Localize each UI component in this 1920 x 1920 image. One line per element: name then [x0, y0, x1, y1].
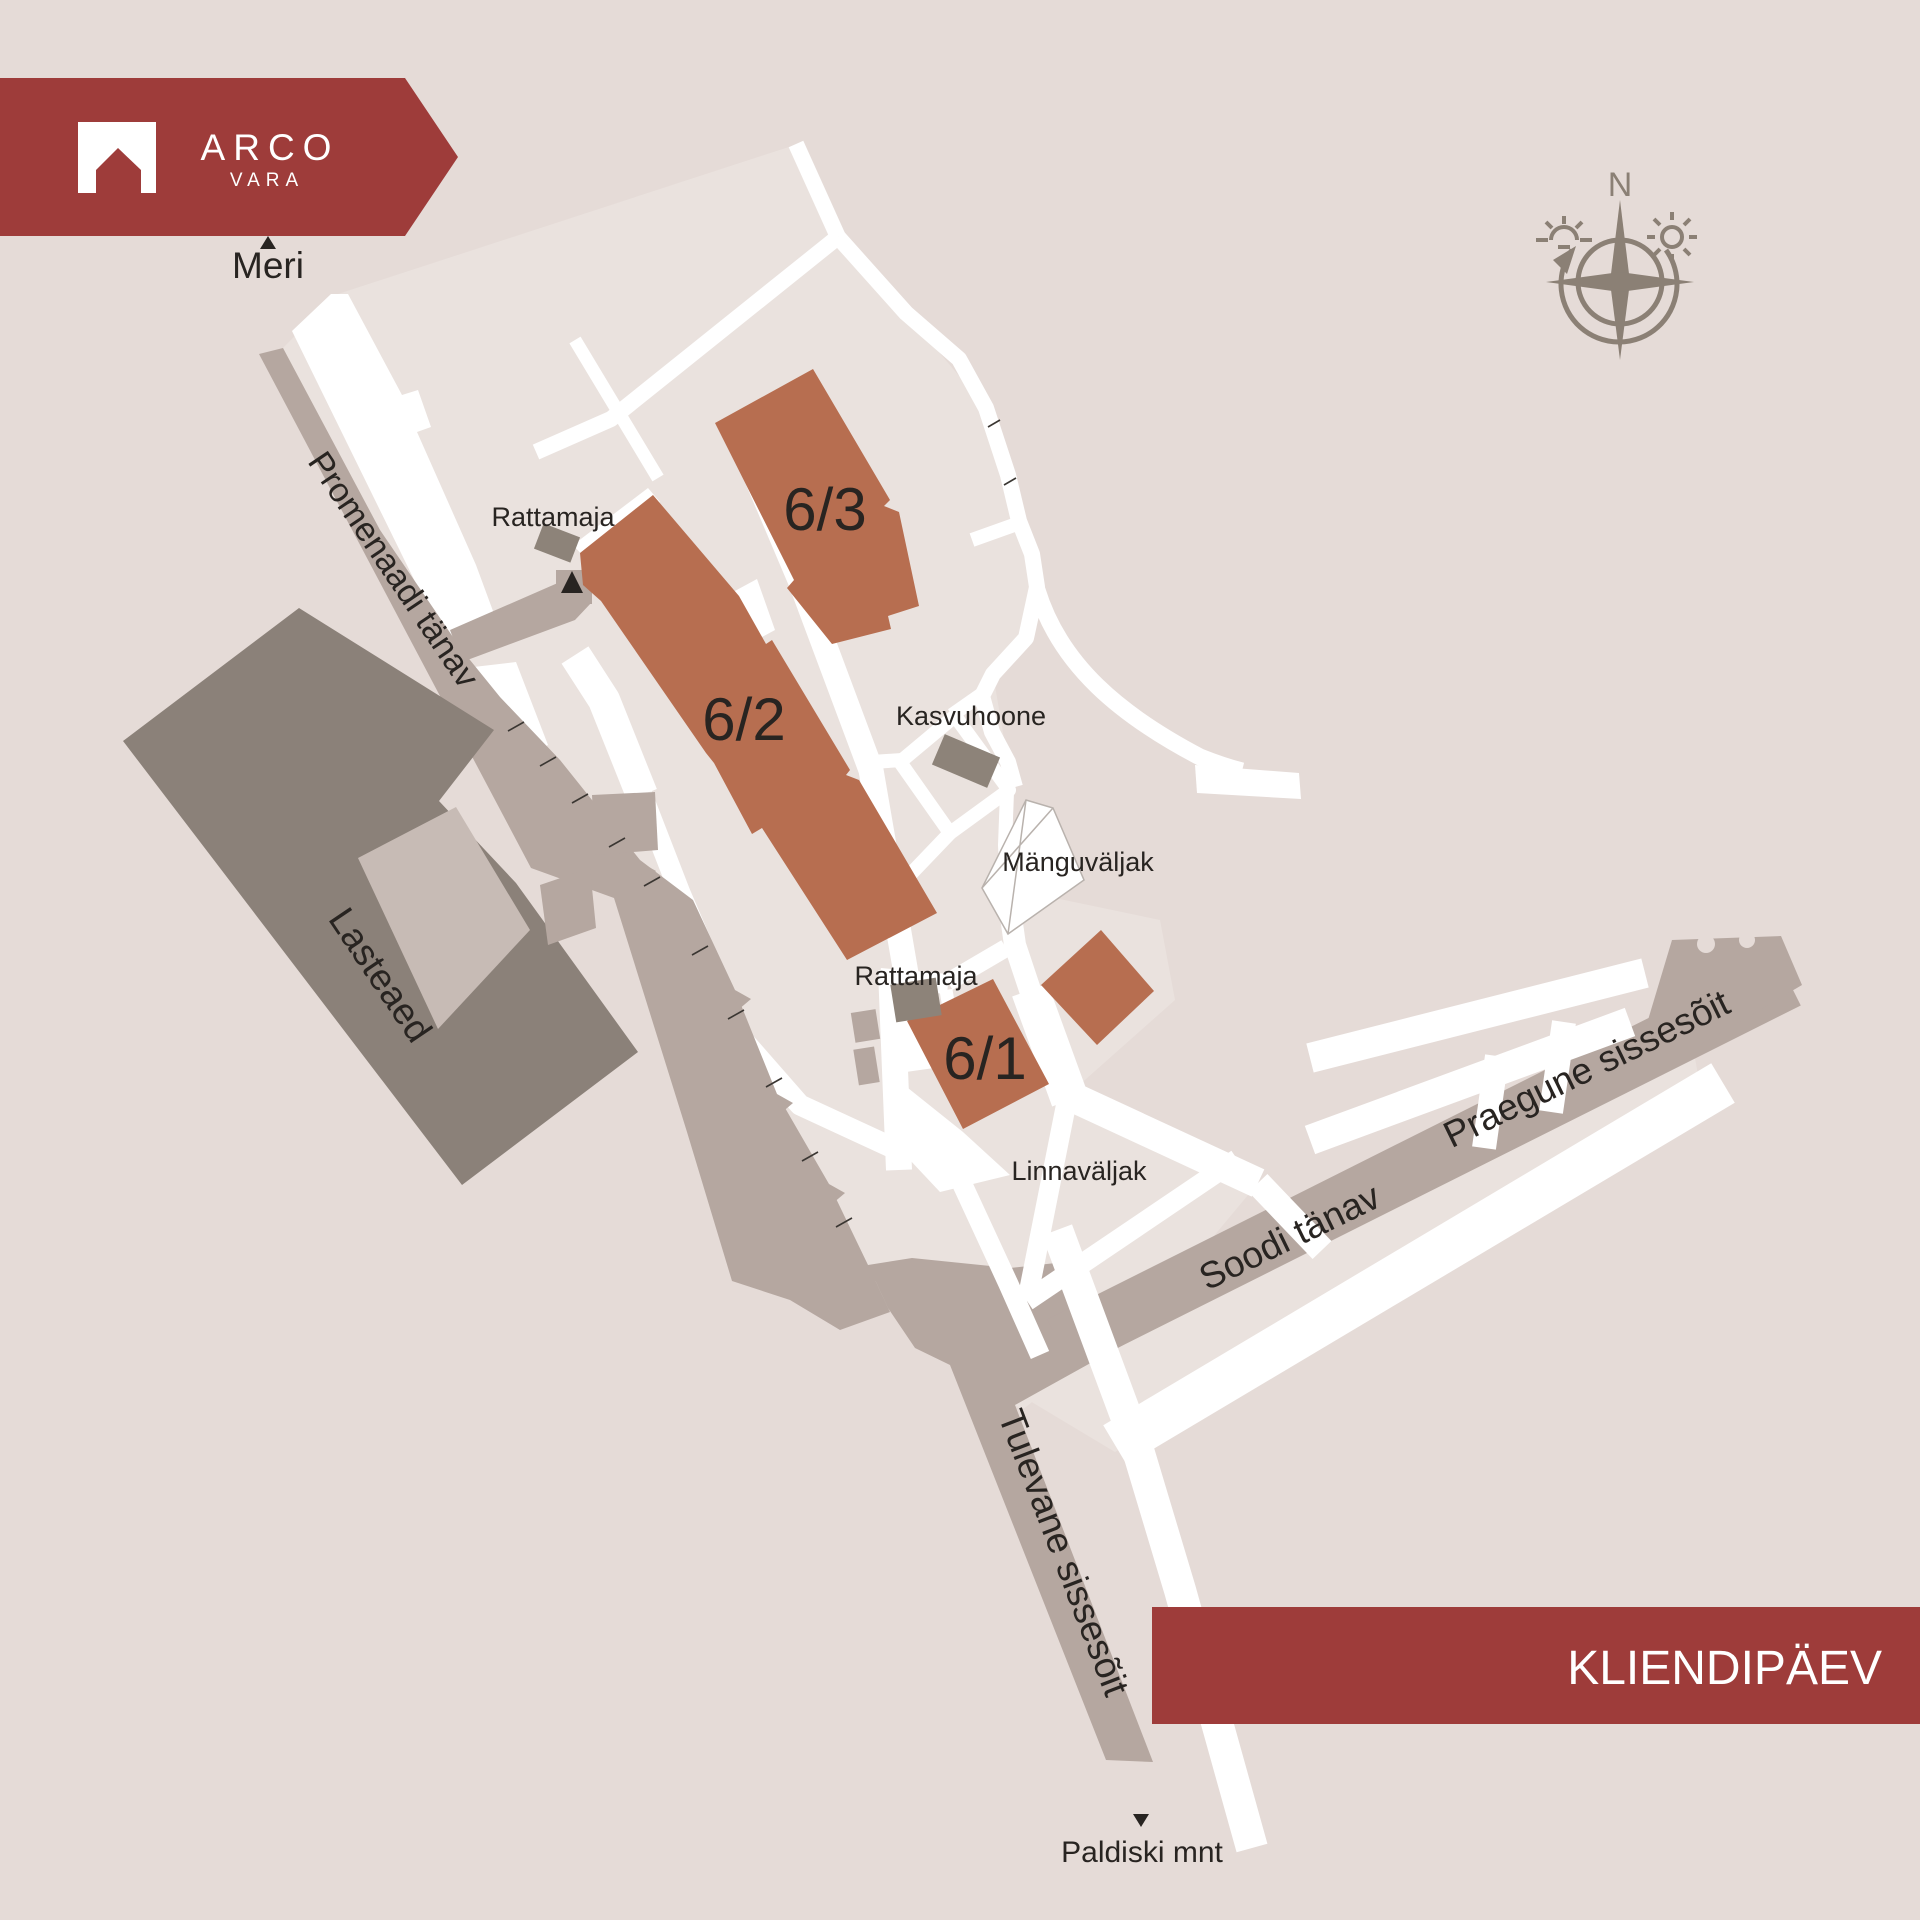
svg-text:Meri: Meri [232, 245, 304, 286]
svg-text:ARCO: ARCO [201, 127, 340, 168]
svg-text:Paldiski mnt: Paldiski mnt [1061, 1836, 1223, 1869]
svg-text:Linnaväljak: Linnaväljak [1011, 1156, 1147, 1186]
svg-text:VARA: VARA [230, 170, 304, 191]
svg-text:KLIENDIPÄEV: KLIENDIPÄEV [1567, 1642, 1882, 1695]
svg-text:6/1: 6/1 [943, 1025, 1026, 1092]
svg-text:N: N [1608, 166, 1633, 204]
svg-text:6/2: 6/2 [702, 686, 785, 753]
svg-text:Rattamaja: Rattamaja [491, 502, 615, 532]
svg-text:Mänguväljak: Mänguväljak [1002, 847, 1154, 877]
svg-text:Kasvuhoone: Kasvuhoone [896, 701, 1046, 731]
svg-text:6/3: 6/3 [783, 476, 866, 543]
svg-text:Rattamaja: Rattamaja [854, 961, 978, 991]
